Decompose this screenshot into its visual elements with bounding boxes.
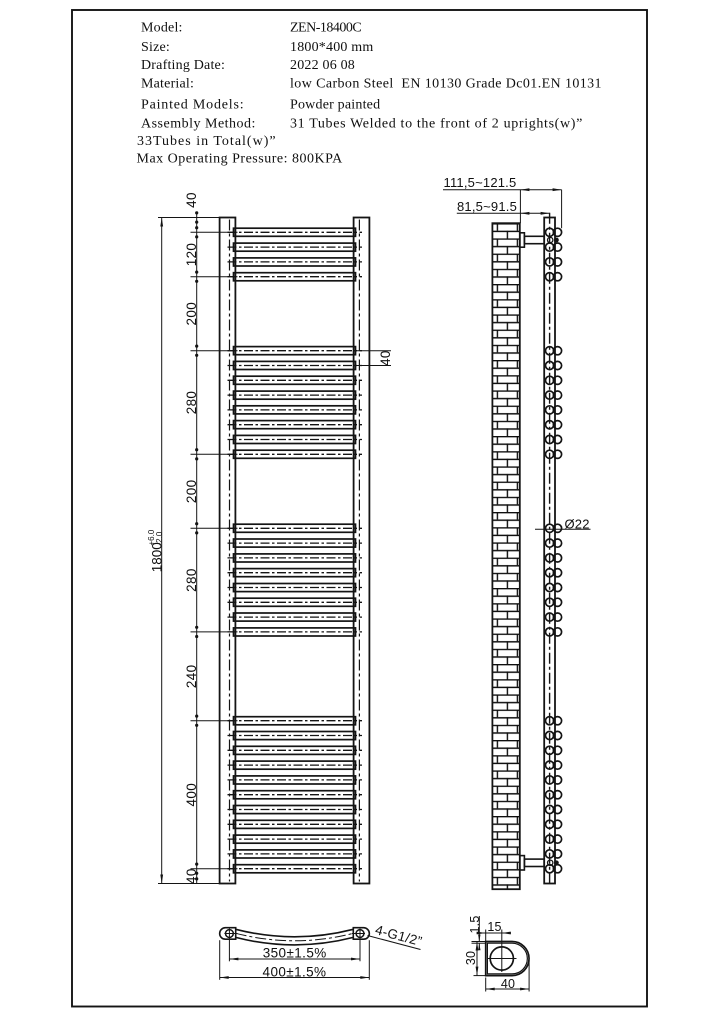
svg-text:Painted Models:: Painted Models:: [141, 98, 244, 113]
svg-text:30: 30: [464, 951, 478, 965]
svg-text:111,5~121.5: 111,5~121.5: [444, 175, 517, 190]
svg-text:Model:: Model:: [141, 20, 183, 35]
svg-text:2022 06 08: 2022 06 08: [290, 58, 355, 73]
svg-text:240: 240: [184, 665, 199, 689]
svg-text:33Tubes in Total(w)”: 33Tubes in Total(w)”: [137, 134, 277, 149]
svg-text:1800*400 mm: 1800*400 mm: [290, 40, 373, 55]
svg-text:15: 15: [487, 920, 501, 934]
svg-text:Powder painted: Powder painted: [290, 98, 380, 113]
svg-text:Drafting Date:: Drafting Date:: [141, 58, 225, 73]
svg-text:40: 40: [184, 868, 199, 884]
svg-text:40: 40: [184, 192, 199, 208]
svg-text:Ø22: Ø22: [565, 517, 590, 532]
svg-text:Max Operating Pressure: 800KPA: Max Operating Pressure: 800KPA: [137, 152, 344, 167]
svg-text:4-G1/2”: 4-G1/2”: [374, 922, 424, 949]
svg-text:120: 120: [184, 243, 199, 267]
svg-text:1800: 1800: [150, 542, 165, 572]
svg-text:280: 280: [184, 391, 199, 415]
svg-text:280: 280: [184, 568, 199, 592]
svg-text:Size:: Size:: [141, 40, 170, 55]
svg-text:350±1.5%: 350±1.5%: [263, 946, 327, 961]
svg-text:400±1.5%: 400±1.5%: [263, 964, 327, 979]
svg-text:1.5: 1.5: [468, 916, 482, 934]
svg-text:31 Tubes Welded to the front o: 31 Tubes Welded to the front of 2 uprigh…: [290, 116, 583, 131]
svg-text:-2.0: -2.0: [155, 531, 164, 545]
svg-text:200: 200: [184, 480, 199, 504]
svg-text:81,5~91.5: 81,5~91.5: [457, 199, 517, 214]
svg-text:Material:: Material:: [141, 77, 194, 92]
svg-text:low Carbon Steel EN 10130 Gra: low Carbon Steel EN 10130 Grade Dc01.EN …: [290, 77, 602, 92]
svg-text:400: 400: [184, 783, 199, 807]
svg-text:Assembly Method:: Assembly Method:: [141, 116, 256, 131]
svg-text:200: 200: [184, 302, 199, 326]
svg-text:40: 40: [378, 350, 393, 366]
svg-text:40: 40: [501, 977, 515, 991]
svg-text:ZEN-18400C: ZEN-18400C: [290, 20, 361, 35]
